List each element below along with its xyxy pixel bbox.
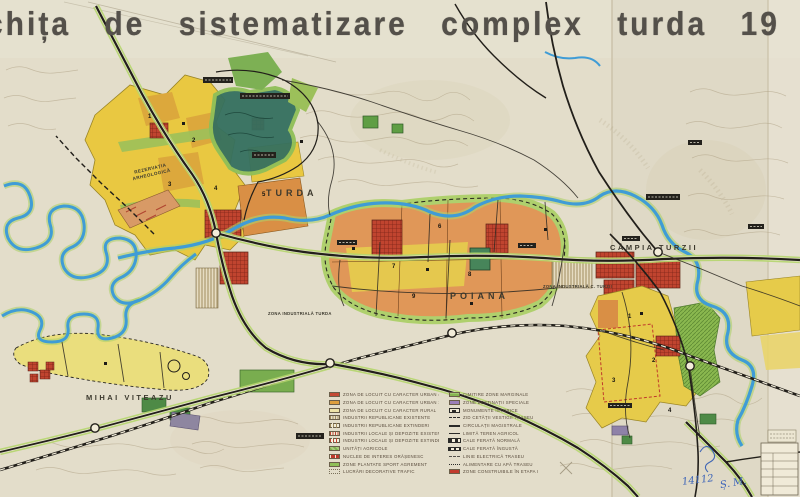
legend-swatch-planted-zones xyxy=(329,462,340,467)
legend-column-right: CIMITIRE ZONE MARGINALE ZONE DESTINAȚII … xyxy=(449,391,539,476)
legend-swatch-power-line xyxy=(449,456,460,457)
legend-swatch-residential-low xyxy=(329,400,340,405)
legend-item: INDUSTRII REPUBLICANE EXTINDERI xyxy=(329,422,439,430)
legend-swatch-local-industry-extension xyxy=(329,438,340,443)
legend-label: ZID CETĂȚII VESTIGII TRASEU xyxy=(463,415,534,420)
legend-label: CIMITIRE ZONE MARGINALE xyxy=(463,392,528,397)
legend-swatch-stage-one-zones xyxy=(449,469,460,474)
legend-column-left: ZONA DE LOCUIT CU CARACTER URBAN 4-5 NIV… xyxy=(329,391,439,476)
legend-swatch-rural xyxy=(329,408,340,413)
label-poiana: POIANA xyxy=(450,291,509,301)
legend-swatch-special-zones xyxy=(449,400,460,405)
legend-swatch-monuments-icon xyxy=(449,408,460,413)
legend-item: ZONA DE LOCUIT CU CARACTER URBAN 1-2 NIV xyxy=(329,399,439,407)
legend-swatch-agric-limit-line xyxy=(449,433,460,434)
legend-label: ZONA DE LOCUIT CU CARACTER RURAL xyxy=(343,408,436,413)
legend-swatch-agriculture xyxy=(329,446,340,451)
legend-item: NUCLEE DE INTERES ORĂȘENESC xyxy=(329,453,439,461)
legend-label: CALE FERATĂ ÎNGUSTĂ xyxy=(463,446,518,451)
legend-item: ZONE PLANTATE SPORT AGREMENT xyxy=(329,460,439,468)
legend-item: INDUSTRII REPUBLICANE EXISTENTE xyxy=(329,414,439,422)
legend-label: CALE FERATĂ NORMALĂ xyxy=(463,438,520,443)
legend-item: MONUMENTE ISTORICE xyxy=(449,406,539,414)
legend-item: ALIMENTARE CU APĂ TRASEU xyxy=(449,460,539,468)
legend-swatch-railway-narrow xyxy=(449,448,460,450)
legend-item: ZONE CONSTRUIBILE ÎN ETAPA I xyxy=(449,468,539,476)
legend-label: ZONE PLANTATE SPORT AGREMENT xyxy=(343,462,427,467)
legend-swatch-major-roads-line xyxy=(449,425,460,427)
legend-swatch-cemeteries xyxy=(449,392,460,397)
legend-swatch-industry-existing xyxy=(329,415,340,420)
legend-swatch-vestige-line xyxy=(449,417,460,418)
legend-swatch-town-nuclei xyxy=(329,454,340,459)
legend-label: MONUMENTE ISTORICE xyxy=(463,408,518,413)
legend-item: CIMITIRE ZONE MARGINALE xyxy=(449,391,539,399)
legend-label: ZONA DE LOCUIT CU CARACTER URBAN 4-5 NIV xyxy=(343,392,439,397)
legend-item: ZONA DE LOCUIT CU CARACTER RURAL xyxy=(329,406,439,414)
legend-swatch-local-industry-existing xyxy=(329,431,340,436)
legend-label: ZONE DESTINAȚII SPECIALE xyxy=(463,400,529,405)
legend-item: LUCRĂRI DECORATIVE TRAFIC xyxy=(329,468,439,476)
legend-swatch-water-line xyxy=(449,464,460,465)
label-turda: TURDA xyxy=(266,188,318,198)
legend-label: INDUSTRII LOCALE ȘI DEPOZITE EXISTENTE xyxy=(343,431,439,436)
legend-swatch-residential-high xyxy=(329,392,340,397)
map-legend: ZONA DE LOCUIT CU CARACTER URBAN 4-5 NIV… xyxy=(329,391,539,476)
legend-item: CIRCULAȚII MAGISTRALE xyxy=(449,422,539,430)
legend-item: CALE FERATĂ NORMALĂ xyxy=(449,437,539,445)
label-zona-industriala-campia-turzii: ZONA INDUSTRIALĂ C. TURZII xyxy=(543,284,612,289)
legend-item: INDUSTRII LOCALE ȘI DEPOZITE EXISTENTE xyxy=(329,429,439,437)
map-title: chița de sistematizare complex turda 19 xyxy=(0,6,780,44)
legend-swatch-railway-normal xyxy=(449,439,460,442)
legend-swatch-decorative xyxy=(329,469,340,474)
label-campia-turzii: CÂMPIA TURZII xyxy=(610,243,698,252)
legend-swatch-industry-extension xyxy=(329,423,340,428)
legend-item: LINIE ELECTRICĂ TRASEU xyxy=(449,453,539,461)
legend-label: ZONE CONSTRUIBILE ÎN ETAPA I xyxy=(463,469,539,474)
legend-item: LIMITĂ TEREN AGRICOL xyxy=(449,429,539,437)
legend-label: LINIE ELECTRICĂ TRASEU xyxy=(463,454,524,459)
legend-item: INDUSTRII LOCALE ȘI DEPOZITE EXTINDERI xyxy=(329,437,439,445)
legend-label: INDUSTRII LOCALE ȘI DEPOZITE EXTINDERI xyxy=(343,438,439,443)
legend-label: LIMITĂ TEREN AGRICOL xyxy=(463,431,519,436)
legend-item: UNITĂȚI AGRICOLE xyxy=(329,445,439,453)
legend-label: NUCLEE DE INTERES ORĂȘENESC xyxy=(343,454,424,459)
label-zona-industriala-turda: ZONA INDUSTRIALĂ TURDA xyxy=(268,311,332,316)
legend-label: INDUSTRII REPUBLICANE EXISTENTE xyxy=(343,415,430,420)
scanned-map-sheet: 1 2 3 4 5 6 7 8 9 1 2 3 4 chița de siste… xyxy=(0,0,800,497)
label-mihai-viteazu: MIHAI VITEAZU xyxy=(86,393,174,402)
legend-label: ZONA DE LOCUIT CU CARACTER URBAN 1-2 NIV xyxy=(343,400,439,405)
legend-item: ZONA DE LOCUIT CU CARACTER URBAN 4-5 NIV xyxy=(329,391,439,399)
legend-label: LUCRĂRI DECORATIVE TRAFIC xyxy=(343,469,415,474)
legend-label: UNITĂȚI AGRICOLE xyxy=(343,446,388,451)
legend-label: ALIMENTARE CU APĂ TRASEU xyxy=(463,462,533,467)
legend-item: CALE FERATĂ ÎNGUSTĂ xyxy=(449,445,539,453)
legend-item: ZONE DESTINAȚII SPECIALE xyxy=(449,399,539,407)
legend-item: ZID CETĂȚII VESTIGII TRASEU xyxy=(449,414,539,422)
legend-label: INDUSTRII REPUBLICANE EXTINDERI xyxy=(343,423,429,428)
legend-label: CIRCULAȚII MAGISTRALE xyxy=(463,423,522,428)
